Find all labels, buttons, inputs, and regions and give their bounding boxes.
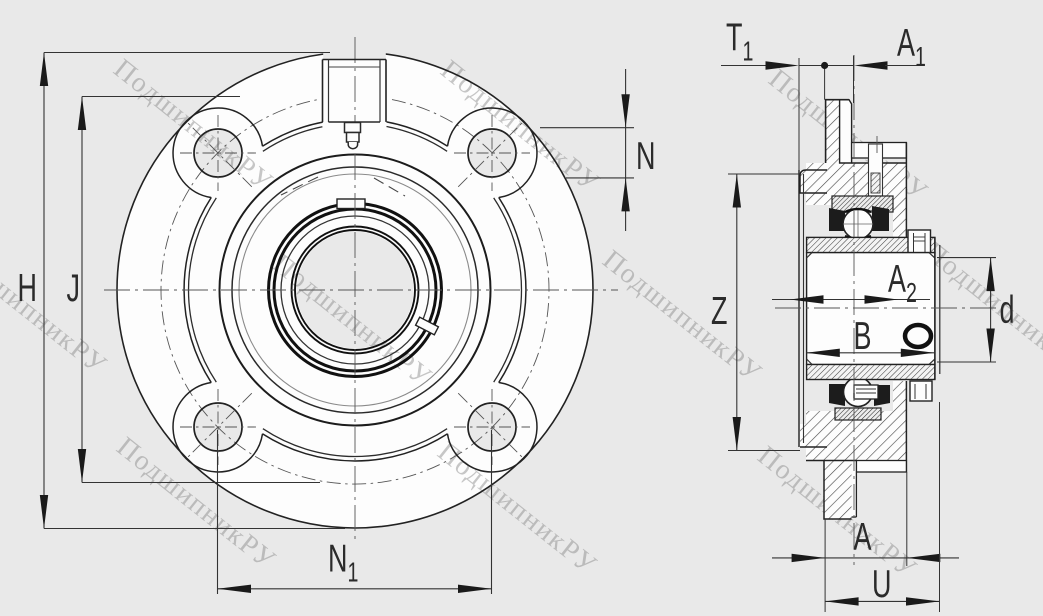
svg-text:N: N xyxy=(636,135,655,178)
svg-text:H: H xyxy=(18,267,37,310)
svg-text:Z: Z xyxy=(711,290,727,333)
svg-text:d: d xyxy=(1000,289,1015,332)
svg-text:J: J xyxy=(67,267,80,310)
svg-text:U: U xyxy=(872,563,891,606)
svg-text:A: A xyxy=(854,516,873,559)
svg-text:B: B xyxy=(854,315,872,358)
